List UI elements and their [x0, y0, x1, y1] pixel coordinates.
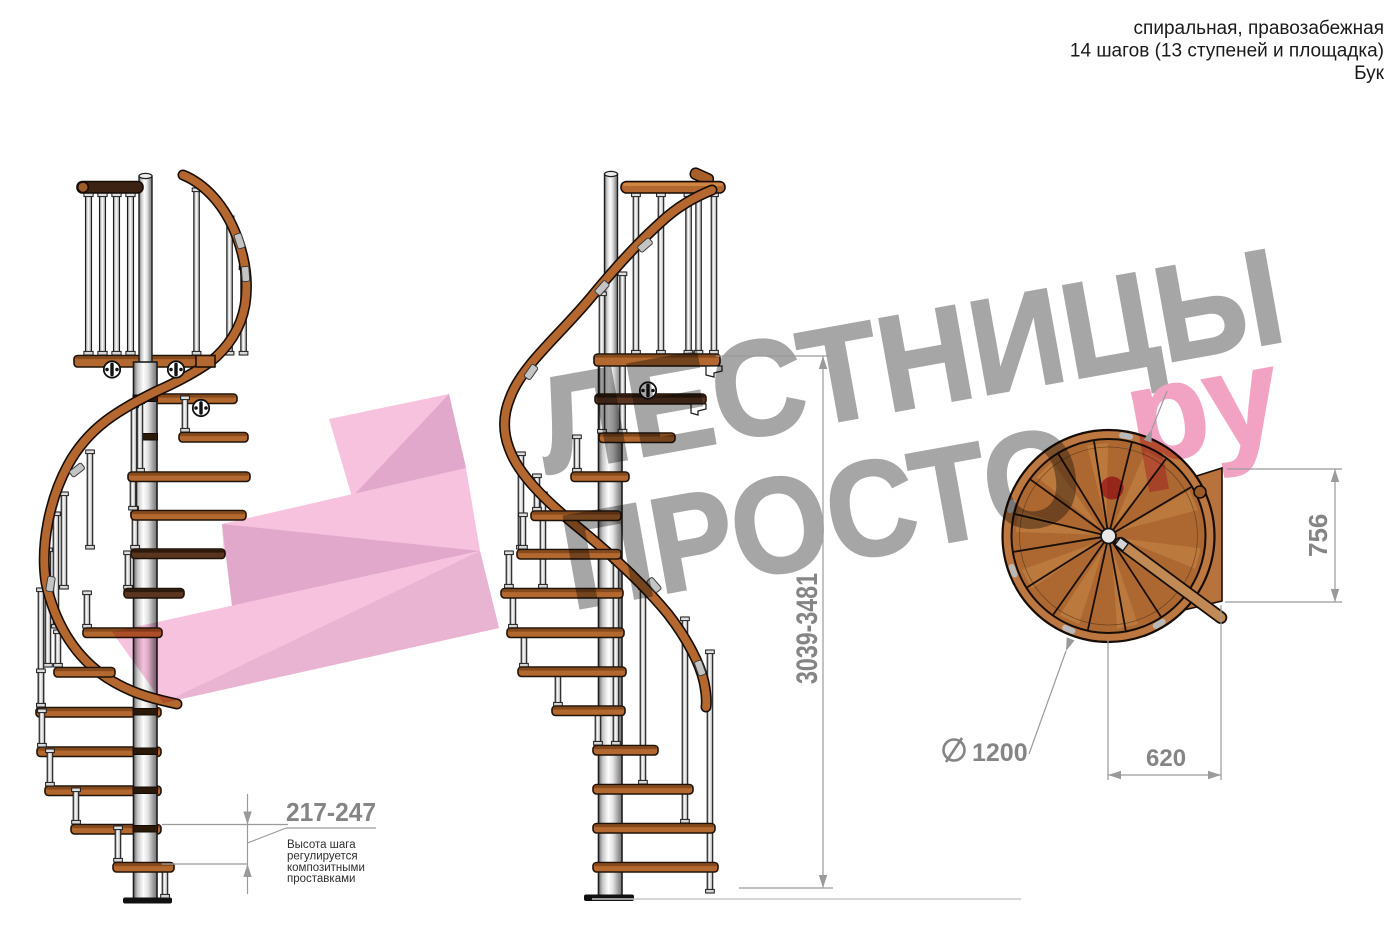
svg-text:Высота шагарегулируетсякомпози: Высота шагарегулируетсякомпозитнымипрост…: [287, 839, 365, 885]
svg-text:ру: ру: [1114, 317, 1291, 494]
svg-text:756: 756: [1303, 514, 1333, 557]
svg-text:620: 620: [1146, 745, 1186, 772]
svg-text:1200: 1200: [972, 739, 1028, 767]
svg-text:217-247: 217-247: [286, 797, 376, 827]
svg-text:3039-3481: 3039-3481: [791, 573, 824, 684]
